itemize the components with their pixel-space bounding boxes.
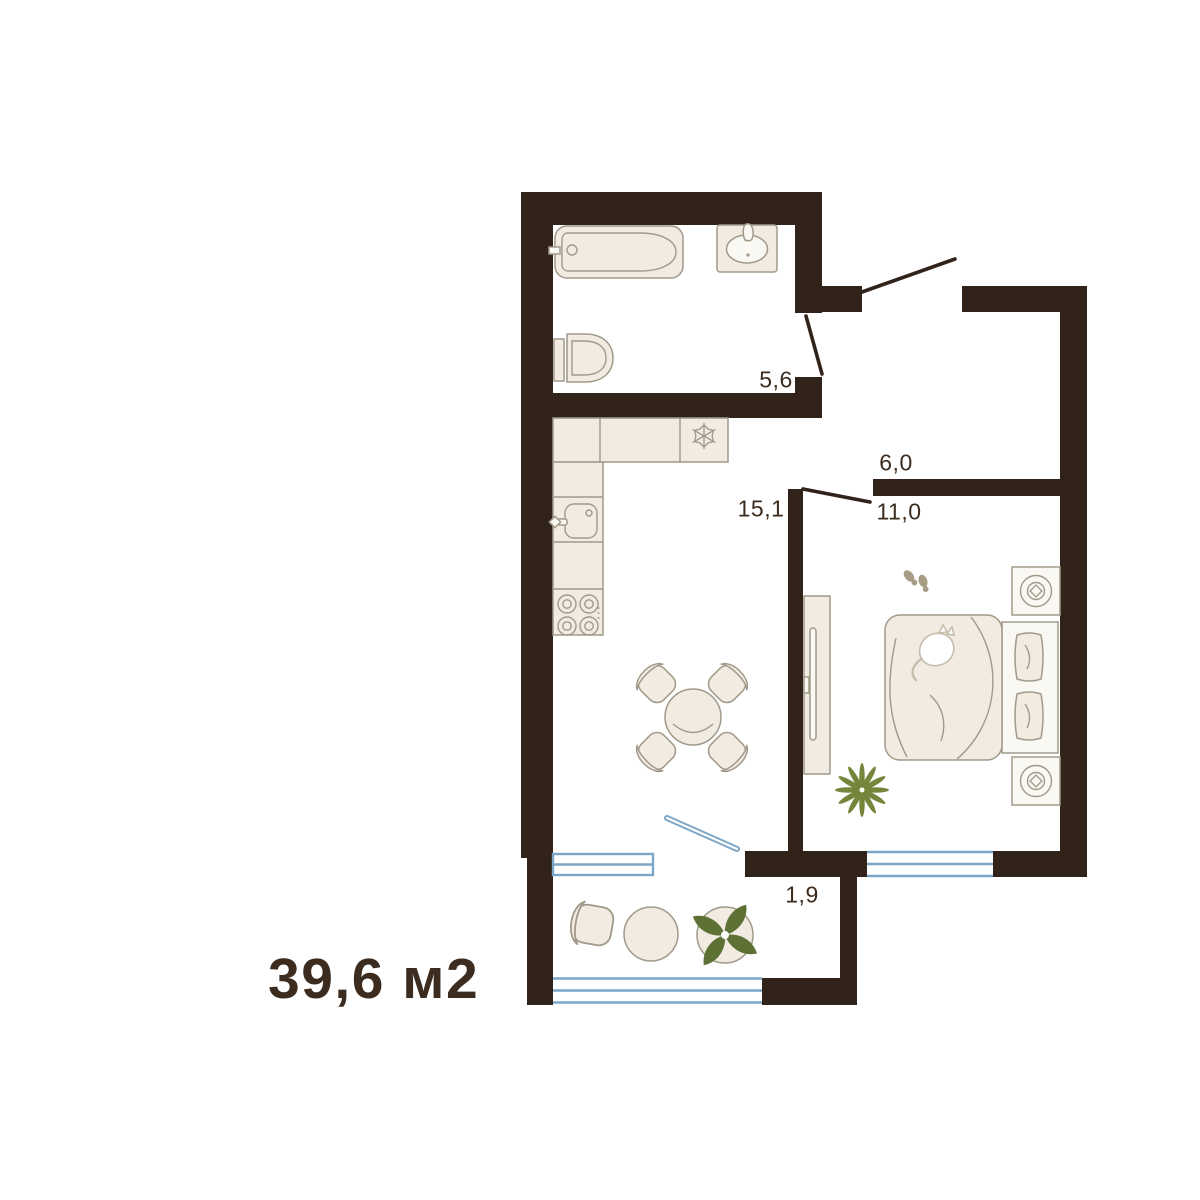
floorplan-page: 5,6 6,0 15,1 11,0 1,9 39,6 м2 [0,0,1200,1200]
bedroom-window-icon [867,852,993,876]
kitchen-fixtures [549,418,752,777]
balcony-table-icon [624,907,678,961]
balcony-window-icon [553,979,762,1003]
bed-icon [885,615,1058,760]
nightstand-lamp-icon [1012,757,1060,805]
bedroom-door-icon [803,489,870,502]
bathroom-door-icon [806,316,822,374]
hallway-area-label: 6,0 [879,450,912,477]
bedroom-plant-icon [835,763,889,817]
kitchen-window-icon [553,854,653,875]
slippers-icon [902,568,931,593]
balcony-plant-icon [689,901,760,970]
balcony-door-icon [667,818,737,849]
balcony-fixtures [568,900,761,969]
floor-plan-svg [0,0,1200,1200]
balcony-area-label: 1,9 [785,882,818,909]
nightstand-lamp-icon [1012,567,1060,615]
windows [553,818,993,1003]
bedroom-fixtures [804,567,1060,817]
bathroom-sink-icon [717,224,777,272]
pillow-icon [1015,692,1043,740]
toilet-icon [554,334,613,382]
kitchen-counter [553,418,728,635]
bedroom-area-label: 11,0 [876,499,921,526]
entrance-door-icon [862,259,955,292]
dining-table-icon [631,658,752,776]
kitchen-area-label: 15,1 [738,496,785,523]
pillow-icon [1015,633,1043,681]
bathtub-icon [549,226,683,278]
bathroom-fixtures [549,224,777,382]
total-area-label: 39,6 м2 [268,946,479,1012]
balcony-chair-icon [568,900,616,950]
bathroom-area-label: 5,6 [759,367,792,394]
wardrobe-icon [804,596,830,774]
